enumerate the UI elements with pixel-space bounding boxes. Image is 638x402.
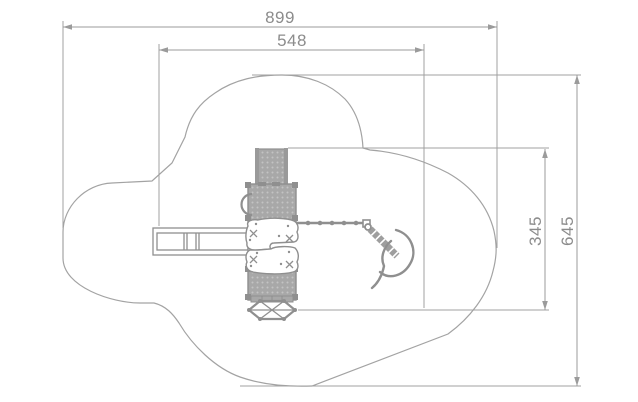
arrow-right-icon bbox=[488, 24, 497, 30]
extension-lines bbox=[63, 21, 581, 386]
canopy-panels bbox=[246, 218, 298, 274]
dimension-548-label: 548 bbox=[277, 31, 307, 50]
overhead-pole bbox=[296, 220, 370, 227]
dimension-899-label: 899 bbox=[265, 8, 295, 27]
access-bridge bbox=[153, 228, 248, 255]
equipment-group bbox=[153, 148, 413, 321]
climbing-ramp bbox=[255, 148, 288, 185]
plan-drawing-canvas: 899 548 345 645 bbox=[0, 0, 638, 402]
arrow-left-icon bbox=[63, 24, 72, 30]
plan-drawing-svg: 899 548 345 645 bbox=[0, 0, 638, 402]
arrow-up-icon bbox=[542, 149, 548, 158]
arrow-down-icon bbox=[574, 377, 580, 386]
dimension-lines bbox=[63, 24, 580, 386]
dimension-645-label: 645 bbox=[558, 216, 577, 246]
dimension-345-label: 345 bbox=[526, 216, 545, 246]
arrow-left-icon bbox=[159, 47, 168, 53]
upper-platform bbox=[245, 182, 298, 222]
arrow-down-icon bbox=[542, 301, 548, 310]
arrow-right-icon bbox=[415, 47, 424, 53]
arrow-up-icon bbox=[574, 75, 580, 84]
diagonal-slide-bar bbox=[365, 224, 397, 256]
